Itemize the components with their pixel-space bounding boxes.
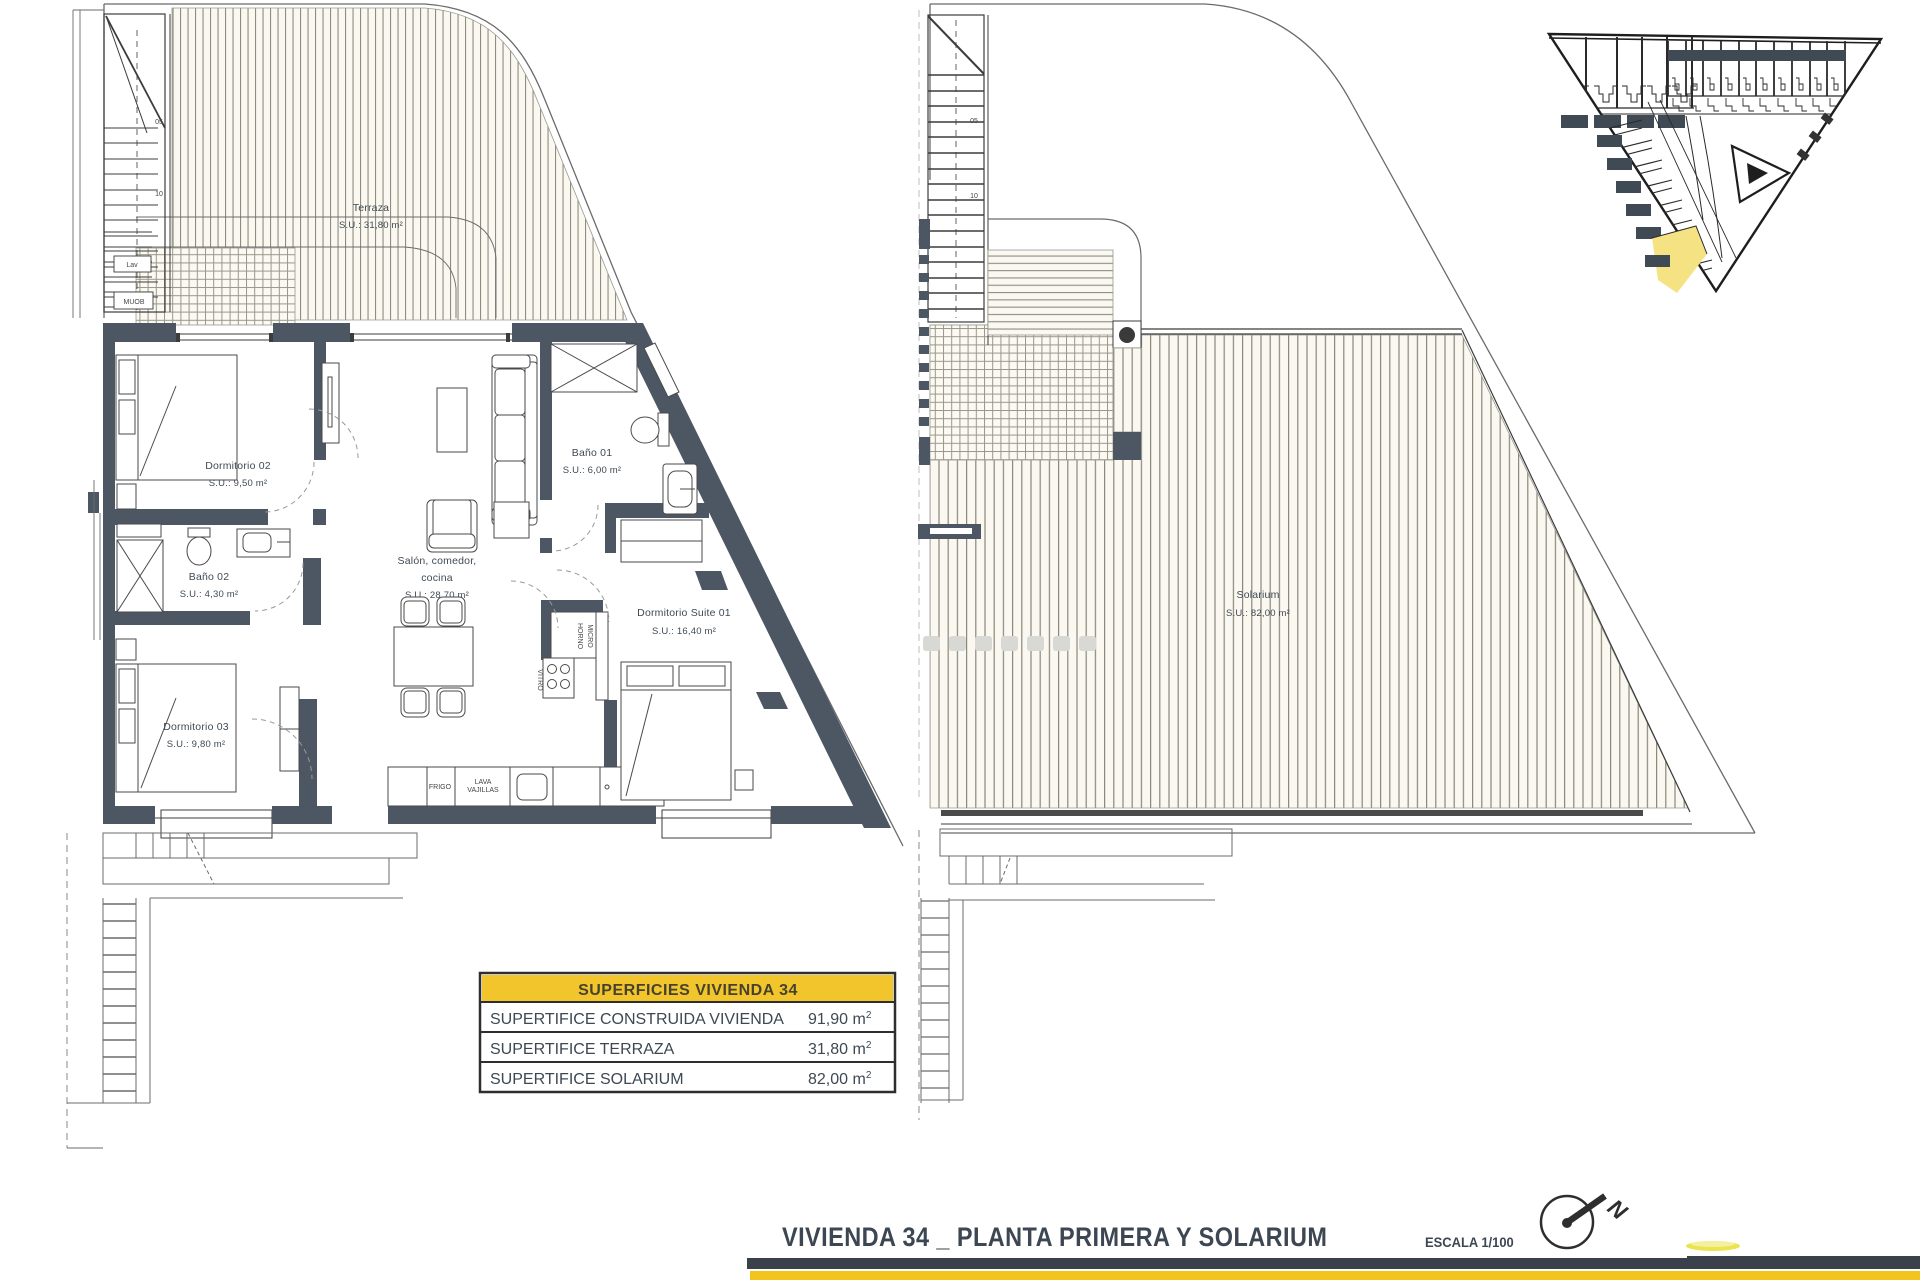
svg-text:Terraza: Terraza (353, 202, 389, 214)
svg-text:SUPERTIFICE SOLARIUM: SUPERTIFICE SOLARIUM (490, 1071, 684, 1088)
svg-text:MUOB: MUOB (124, 299, 145, 306)
svg-text:31,80 m2: 31,80 m2 (808, 1040, 872, 1058)
svg-text:S.U.: 31,80 m²: S.U.: 31,80 m² (339, 220, 403, 231)
svg-text:ESCALA 1/100: ESCALA 1/100 (1425, 1235, 1514, 1250)
svg-text:S.U.: 9,50 m²: S.U.: 9,50 m² (209, 478, 268, 489)
svg-text:05: 05 (970, 118, 978, 125)
svg-text:Baño 02: Baño 02 (189, 571, 230, 583)
svg-text:Dormitorio 02: Dormitorio 02 (205, 460, 271, 472)
svg-text:Baño 01: Baño 01 (572, 447, 613, 459)
svg-text:10: 10 (970, 193, 978, 200)
svg-text:VAJILLAS: VAJILLAS (467, 787, 499, 794)
svg-text:10: 10 (155, 191, 163, 198)
svg-text:FRIGO: FRIGO (429, 784, 452, 791)
svg-text:Dormitorio Suite 01: Dormitorio Suite 01 (637, 607, 731, 619)
svg-text:S.U.: 82,00 m²: S.U.: 82,00 m² (1226, 608, 1290, 619)
svg-text:LAVA: LAVA (475, 779, 492, 786)
svg-text:Solarium: Solarium (1236, 589, 1279, 601)
svg-text:cocina: cocina (421, 572, 453, 584)
svg-text:SUPERTIFICE CONSTRUIDA VIVIEND: SUPERTIFICE CONSTRUIDA VIVIENDA (490, 1011, 784, 1028)
svg-text:91,90 m2: 91,90 m2 (808, 1010, 872, 1028)
svg-text:Salón, comedor,: Salón, comedor, (398, 555, 477, 567)
svg-text:05: 05 (155, 119, 163, 126)
svg-text:SUPERFICIES VIVIENDA 34: SUPERFICIES VIVIENDA 34 (578, 982, 798, 999)
svg-text:VITRO: VITRO (536, 669, 543, 691)
svg-text:SUPERTIFICE TERRAZA: SUPERTIFICE TERRAZA (490, 1041, 675, 1058)
svg-text:82,00 m2: 82,00 m2 (808, 1070, 872, 1088)
svg-text:S.U.: 9,80 m²: S.U.: 9,80 m² (167, 739, 226, 750)
svg-text:HORNO: HORNO (576, 623, 583, 650)
svg-text:MICRO: MICRO (586, 624, 593, 648)
svg-text:S.U.: 6,00 m²: S.U.: 6,00 m² (563, 465, 622, 476)
svg-text:Dormitorio 03: Dormitorio 03 (163, 721, 229, 733)
svg-text:S.U.: 4,30 m²: S.U.: 4,30 m² (180, 589, 239, 600)
svg-text:Lav: Lav (126, 262, 138, 269)
svg-text:S.U.: 16,40 m²: S.U.: 16,40 m² (652, 626, 716, 637)
svg-text:VIVIENDA 34 _ PLANTA PRIMERA Y: VIVIENDA 34 _ PLANTA PRIMERA Y SOLARIUM (782, 1223, 1327, 1253)
